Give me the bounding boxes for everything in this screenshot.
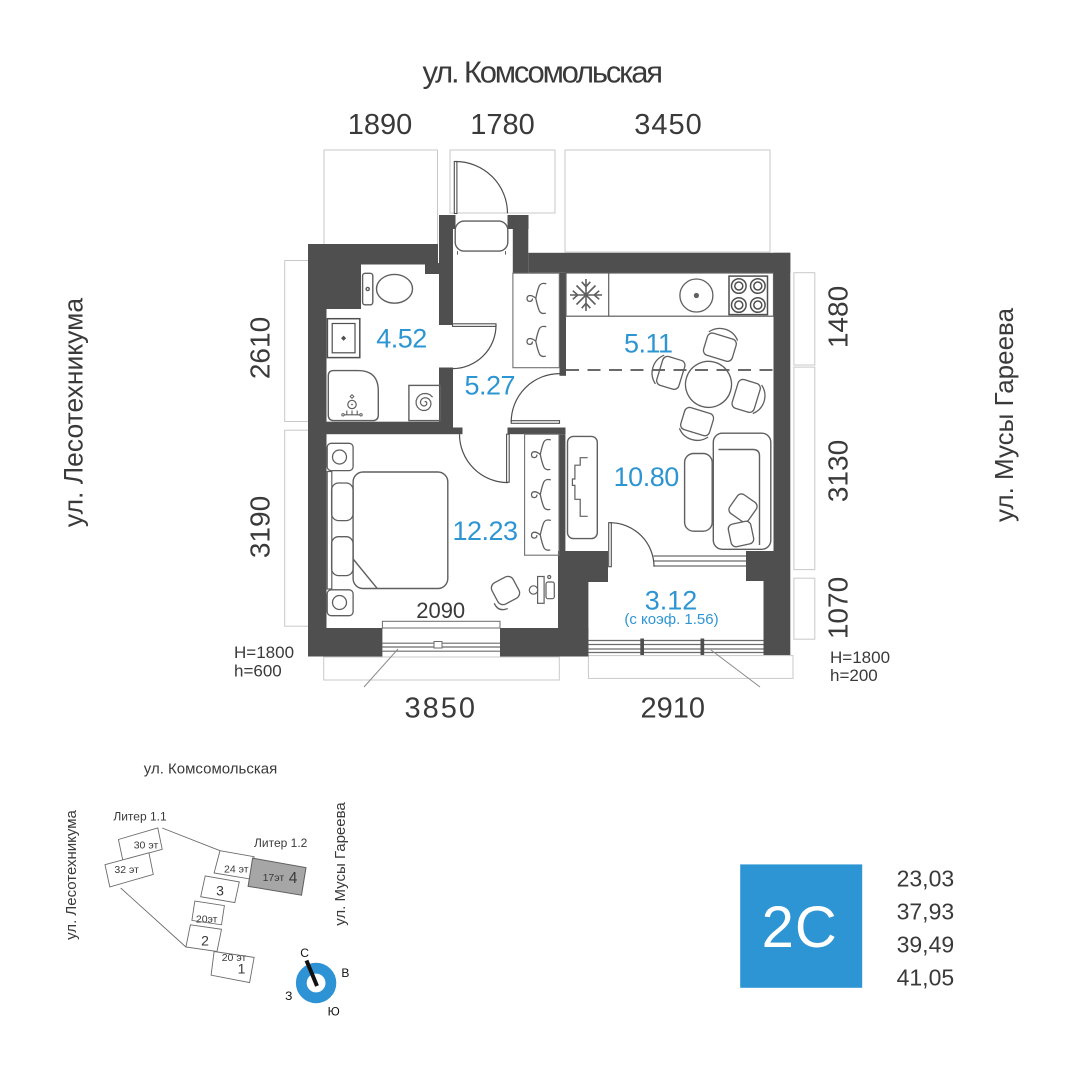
svg-text:24 эт: 24 эт <box>224 864 249 876</box>
svg-text:Литер 1.1: Литер 1.1 <box>113 810 167 824</box>
svg-text:39,49: 39,49 <box>897 932 955 958</box>
svg-text:4: 4 <box>289 870 298 887</box>
svg-text:30 эт: 30 эт <box>134 840 159 852</box>
svg-text:1480: 1480 <box>822 286 853 348</box>
svg-text:ул. Лесотехникума: ул. Лесотехникума <box>63 809 80 939</box>
svg-text:41,05: 41,05 <box>897 965 955 991</box>
svg-text:3190: 3190 <box>244 496 275 558</box>
svg-text:H=1800: H=1800 <box>830 648 890 667</box>
svg-text:1: 1 <box>238 961 246 977</box>
svg-text:2: 2 <box>201 933 209 949</box>
svg-text:h=600: h=600 <box>234 662 282 681</box>
svg-text:1780: 1780 <box>470 109 535 141</box>
svg-text:5.27: 5.27 <box>465 370 516 400</box>
svg-text:ул. Лесотехникума: ул. Лесотехникума <box>59 298 89 527</box>
svg-text:1070: 1070 <box>822 577 853 639</box>
svg-text:ул. Комсомольская: ул. Комсомольская <box>144 761 277 778</box>
svg-text:1890: 1890 <box>348 109 413 141</box>
svg-text:ул. Комсомольская: ул. Комсомольская <box>423 55 662 90</box>
svg-text:3850: 3850 <box>404 693 477 725</box>
svg-text:С: С <box>300 946 309 960</box>
svg-text:2910: 2910 <box>641 693 706 725</box>
svg-text:3450: 3450 <box>634 109 703 141</box>
svg-text:4.52: 4.52 <box>376 324 427 354</box>
svg-text:h=200: h=200 <box>830 666 878 685</box>
svg-text:12.23: 12.23 <box>452 516 517 546</box>
svg-text:10.80: 10.80 <box>614 462 679 492</box>
svg-text:Литер 1.2: Литер 1.2 <box>254 836 308 850</box>
svg-text:ул. Мусы Гареева: ул. Мусы Гареева <box>989 307 1019 522</box>
svg-text:32 эт: 32 эт <box>114 864 139 876</box>
svg-text:Ю: Ю <box>328 1005 340 1019</box>
svg-text:H=1800: H=1800 <box>234 643 294 662</box>
svg-text:З: З <box>285 989 292 1003</box>
svg-text:2610: 2610 <box>244 317 275 379</box>
svg-text:3: 3 <box>216 883 224 899</box>
svg-text:23,03: 23,03 <box>897 866 955 892</box>
svg-text:2090: 2090 <box>416 598 465 623</box>
svg-text:17эт: 17эт <box>263 872 285 884</box>
svg-text:3130: 3130 <box>822 440 853 502</box>
svg-text:37,93: 37,93 <box>897 899 955 925</box>
svg-text:(с коэф. 1.56): (с коэф. 1.56) <box>624 611 718 628</box>
svg-text:20эт: 20эт <box>196 914 218 926</box>
svg-text:ул. Мусы Гареева: ул. Мусы Гареева <box>332 802 349 926</box>
svg-text:5.11: 5.11 <box>624 329 673 359</box>
svg-text:2C: 2C <box>762 895 838 960</box>
svg-text:В: В <box>341 966 349 980</box>
